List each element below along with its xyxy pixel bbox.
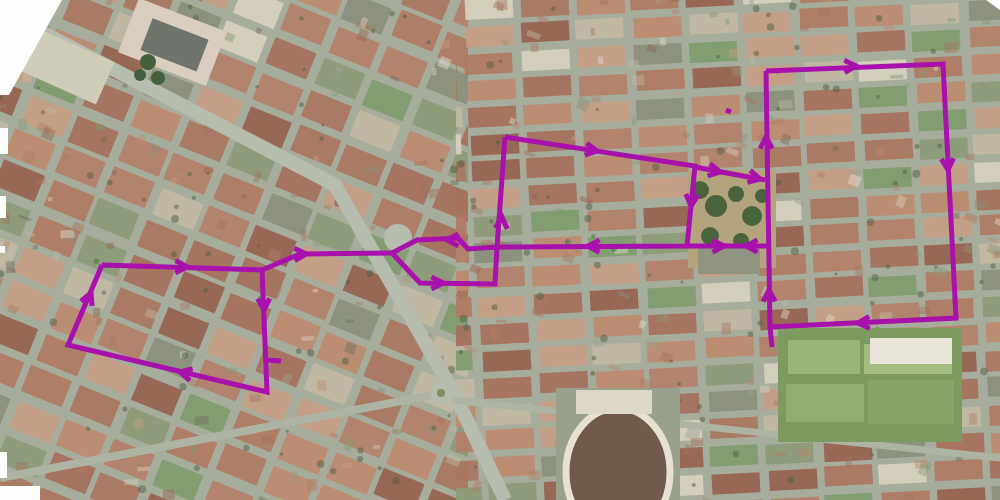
- field: [786, 384, 864, 422]
- trees: [134, 69, 146, 81]
- stadium: [566, 408, 670, 500]
- trees: [140, 54, 156, 70]
- stadium-roof: [576, 390, 652, 414]
- route-path-south-stub: [770, 327, 772, 347]
- roundabout-center: [437, 389, 445, 397]
- trees: [151, 71, 165, 85]
- park-trees: [728, 186, 744, 202]
- satellite-map: [0, 0, 1000, 500]
- route-path-small-mark: [726, 110, 731, 112]
- route-path-left-loop-tick: [266, 360, 281, 361]
- field: [788, 340, 860, 374]
- aerial-imagery: [0, 0, 1000, 500]
- park-trees: [705, 195, 727, 217]
- field: [868, 380, 954, 424]
- map-canvas: [0, 0, 1000, 500]
- park-trees: [742, 206, 762, 226]
- white-building: [870, 338, 952, 364]
